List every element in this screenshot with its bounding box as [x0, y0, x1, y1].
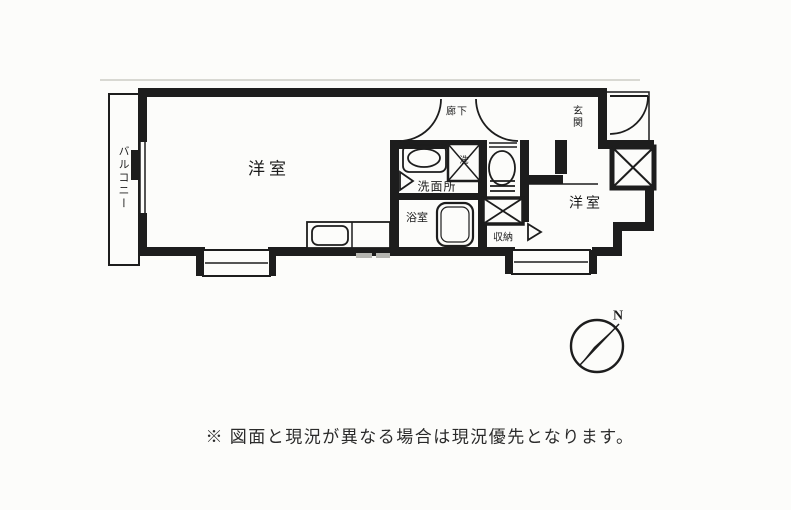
- wall-right-lower: [645, 188, 654, 231]
- toilet: [489, 151, 515, 191]
- door-arc-hallway-left: [399, 99, 441, 141]
- wall-entrance-pillar: [555, 140, 567, 174]
- bathroom-label: 浴室: [406, 212, 428, 224]
- balcony-window: [140, 142, 145, 213]
- balcony-partition-mark: [131, 150, 139, 180]
- room-right-label: 洋室: [569, 196, 603, 211]
- compass-needle-edge: [579, 324, 619, 366]
- bathtub: [437, 203, 473, 246]
- washer-mark-label: 洗: [459, 157, 468, 167]
- compass-north-label: N: [613, 308, 623, 323]
- door-arc-hallway-right: [476, 99, 518, 141]
- wall-washroom-bath-divider: [390, 193, 478, 200]
- window-bottom-right: [505, 250, 597, 274]
- room-large-label: 洋室: [248, 161, 290, 180]
- washroom-sink: [403, 145, 446, 172]
- balcony-label: バルコニー: [117, 146, 129, 211]
- door-marker-washroom: [400, 172, 413, 190]
- compass: [571, 320, 623, 372]
- floor-plan-page: バルコニー 洋室 廊下 玄関 洗面所 浴室 洗 収納 洋室 N ※ 図面と現況が…: [0, 0, 791, 510]
- entrance-door: [607, 92, 649, 140]
- wall-genkan-stub: [529, 175, 563, 184]
- disclaimer-text: ※ 図面と現況が異なる場合は現況優先となります。: [205, 429, 634, 448]
- closet-storage-top: [483, 198, 523, 224]
- scan-artifact-line: [100, 79, 640, 81]
- door-marker-storage: [528, 224, 541, 240]
- storage-label: 収納: [493, 233, 513, 244]
- toilet-door-lines: [489, 143, 517, 147]
- wall-entrance-right: [598, 88, 607, 140]
- wall-top: [138, 88, 607, 97]
- window-bottom-left: [196, 250, 276, 276]
- entrance-label: 玄関: [571, 105, 582, 129]
- hallway-label: 廊下: [446, 107, 468, 118]
- closet-entrance: [612, 147, 654, 188]
- wall-bottom-1: [138, 247, 205, 256]
- washroom-label: 洗面所: [417, 180, 456, 193]
